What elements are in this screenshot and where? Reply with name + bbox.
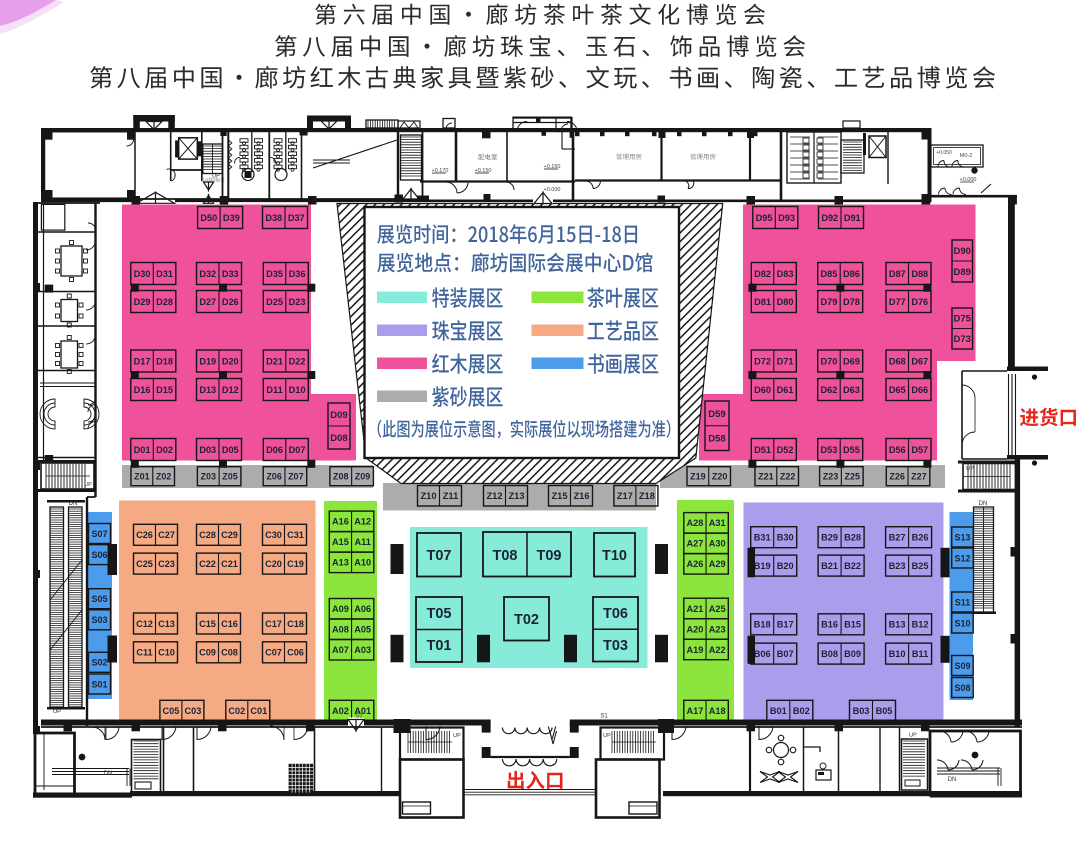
svg-text:D73: D73: [954, 334, 971, 345]
svg-text:T01: T01: [427, 638, 452, 654]
svg-text:C03: C03: [184, 706, 201, 716]
svg-text:DN: DN: [979, 501, 988, 507]
svg-text:A22: A22: [709, 645, 726, 655]
svg-text:D17: D17: [134, 356, 151, 366]
svg-text:B25: B25: [912, 561, 929, 571]
svg-text:D51: D51: [754, 445, 771, 455]
svg-text:B15: B15: [844, 620, 861, 630]
svg-text:A18: A18: [709, 706, 726, 716]
svg-text:D20: D20: [222, 356, 239, 366]
svg-text:D11: D11: [266, 385, 282, 395]
svg-text:+0.050: +0.050: [936, 150, 952, 156]
svg-text:D01: D01: [134, 445, 151, 455]
svg-text:S12: S12: [954, 553, 970, 563]
svg-text:A05: A05: [354, 625, 371, 635]
svg-text:D91: D91: [844, 213, 861, 223]
svg-text:D23: D23: [289, 297, 306, 307]
svg-text:D70: D70: [821, 356, 838, 366]
svg-text:D71: D71: [777, 356, 794, 366]
svg-text:D19: D19: [199, 356, 216, 366]
svg-text:UP: UP: [909, 733, 917, 739]
svg-text:B17: B17: [777, 620, 794, 630]
svg-text:DN: DN: [948, 777, 957, 783]
svg-text:B18: B18: [754, 620, 771, 630]
svg-text:B21: B21: [821, 561, 838, 571]
svg-text:Z03: Z03: [201, 471, 217, 481]
svg-text:Z12: Z12: [486, 491, 502, 501]
svg-text:S09: S09: [954, 661, 970, 671]
svg-text:D13: D13: [199, 385, 216, 395]
svg-text:D69: D69: [843, 356, 860, 366]
svg-text:D50: D50: [200, 213, 217, 223]
svg-text:Z21: Z21: [758, 471, 774, 481]
svg-text:Z18: Z18: [639, 491, 655, 501]
svg-text:D82: D82: [754, 269, 771, 279]
svg-text:C01: C01: [250, 706, 267, 716]
svg-text:D55: D55: [843, 445, 860, 455]
svg-text:D37: D37: [288, 213, 305, 223]
svg-text:C11: C11: [136, 648, 152, 658]
svg-text:D12: D12: [222, 385, 239, 395]
svg-text:D80: D80: [777, 297, 794, 307]
svg-text:A09: A09: [332, 604, 349, 614]
svg-text:S10: S10: [954, 618, 970, 628]
svg-text:C23: C23: [158, 559, 175, 569]
svg-text:C20: C20: [265, 559, 282, 569]
svg-text:Z15: Z15: [551, 491, 567, 501]
svg-text:D25: D25: [266, 297, 283, 307]
svg-text:Z05: Z05: [222, 471, 238, 481]
svg-text:B28: B28: [844, 533, 861, 543]
svg-text:C02: C02: [228, 706, 245, 716]
svg-text:C15: C15: [199, 619, 216, 629]
svg-text:D06: D06: [266, 445, 283, 455]
svg-text:D83: D83: [777, 269, 794, 279]
svg-text:D79: D79: [821, 297, 838, 307]
svg-text:S13: S13: [954, 532, 970, 542]
svg-text:B05: B05: [876, 706, 893, 716]
svg-text:D78: D78: [843, 297, 860, 307]
svg-text:B09: B09: [844, 649, 861, 659]
svg-text:D26: D26: [222, 297, 239, 307]
svg-text:B16: B16: [821, 620, 838, 630]
svg-text:B10: B10: [889, 649, 906, 659]
svg-text:D30: D30: [134, 269, 151, 279]
svg-text:D85: D85: [821, 269, 838, 279]
svg-text:D86: D86: [843, 269, 860, 279]
svg-text:S1: S1: [355, 714, 363, 720]
svg-text:A10: A10: [354, 558, 371, 568]
svg-text:D36: D36: [289, 269, 306, 279]
svg-text:D58: D58: [708, 434, 725, 445]
svg-text:B03: B03: [853, 706, 870, 716]
svg-text:D02: D02: [156, 445, 173, 455]
svg-text:Z27: Z27: [911, 471, 927, 481]
svg-text:B30: B30: [777, 533, 794, 543]
svg-text:D31: D31: [156, 269, 173, 279]
svg-text:S01: S01: [91, 679, 107, 689]
svg-text:D16: D16: [134, 385, 151, 395]
svg-text:C13: C13: [158, 619, 175, 629]
svg-text:C31: C31: [287, 530, 304, 540]
svg-text:T02: T02: [514, 612, 539, 628]
svg-text:D76: D76: [911, 297, 928, 307]
svg-text:D15: D15: [156, 385, 173, 395]
svg-text:D72: D72: [754, 356, 771, 366]
svg-text:C19: C19: [287, 559, 304, 569]
svg-text:A07: A07: [332, 645, 349, 655]
svg-text:S02: S02: [91, 658, 107, 668]
svg-text:D92: D92: [821, 213, 838, 223]
svg-text:A20: A20: [686, 624, 703, 634]
svg-text:C07: C07: [265, 648, 282, 658]
svg-text:UP: UP: [53, 709, 61, 715]
svg-text:Z11: Z11: [443, 491, 459, 501]
svg-text:B08: B08: [821, 649, 838, 659]
svg-text:C28: C28: [199, 530, 216, 540]
svg-text:D18: D18: [156, 356, 173, 366]
svg-text:C06: C06: [287, 648, 304, 658]
svg-text:A21: A21: [686, 604, 703, 614]
svg-text:A11: A11: [354, 537, 370, 547]
svg-text:A06: A06: [354, 604, 371, 614]
svg-text:UP: UP: [603, 733, 611, 739]
svg-text:Z10: Z10: [420, 491, 436, 501]
svg-text:D63: D63: [843, 385, 860, 395]
svg-text:+0.000: +0.000: [544, 187, 561, 193]
svg-text:D77: D77: [889, 297, 906, 307]
svg-text:D39: D39: [223, 213, 240, 223]
svg-text:B20: B20: [777, 561, 794, 571]
svg-text:T10: T10: [602, 548, 627, 564]
svg-text:D88: D88: [911, 269, 928, 279]
svg-text:Z20: Z20: [712, 471, 728, 481]
svg-text:C17: C17: [265, 619, 282, 629]
svg-text:Z13: Z13: [508, 491, 524, 501]
svg-text:T05: T05: [427, 606, 452, 622]
svg-text:B23: B23: [889, 561, 906, 571]
svg-text:D93: D93: [778, 213, 795, 223]
svg-text:Z08: Z08: [333, 471, 349, 481]
svg-text:B31: B31: [754, 533, 771, 543]
svg-text:C26: C26: [136, 530, 153, 540]
svg-text:A08: A08: [332, 625, 349, 635]
svg-text:C16: C16: [221, 619, 238, 629]
svg-text:A27: A27: [686, 539, 703, 549]
svg-text:D59: D59: [708, 409, 725, 420]
svg-text:C30: C30: [265, 530, 282, 540]
svg-text:D35: D35: [266, 269, 283, 279]
svg-text:D60: D60: [754, 385, 771, 395]
svg-text:D07: D07: [289, 445, 306, 455]
svg-text:T07: T07: [427, 548, 452, 564]
svg-text:UP: UP: [453, 733, 461, 739]
svg-text:C08: C08: [221, 648, 238, 658]
svg-text:Z22: Z22: [780, 471, 796, 481]
svg-text:D87: D87: [889, 269, 906, 279]
svg-text:Z06: Z06: [266, 471, 282, 481]
svg-text:D29: D29: [134, 297, 151, 307]
svg-text:A17: A17: [686, 706, 703, 716]
svg-text:A16: A16: [332, 517, 349, 527]
svg-text:Z23: Z23: [823, 471, 839, 481]
svg-text:A12: A12: [354, 517, 371, 527]
svg-text:Z16: Z16: [573, 491, 589, 501]
svg-text:B13: B13: [889, 620, 906, 630]
svg-text:D68: D68: [889, 356, 906, 366]
svg-text:B26: B26: [912, 533, 929, 543]
svg-text:Z26: Z26: [889, 471, 905, 481]
svg-text:C27: C27: [158, 530, 175, 540]
svg-text:D67: D67: [911, 356, 928, 366]
svg-text:D90: D90: [954, 246, 971, 257]
svg-text:B02: B02: [793, 706, 810, 716]
svg-text:D03: D03: [199, 445, 216, 455]
svg-text:S08: S08: [954, 683, 970, 693]
svg-text:T09: T09: [537, 548, 562, 564]
svg-text:C22: C22: [199, 559, 216, 569]
svg-text:C09: C09: [199, 648, 216, 658]
svg-text:B07: B07: [777, 649, 794, 659]
svg-text:D56: D56: [889, 445, 906, 455]
svg-text:D10: D10: [289, 385, 306, 395]
svg-text:C21: C21: [221, 559, 238, 569]
svg-text:Z19: Z19: [690, 471, 706, 481]
svg-text:DN: DN: [104, 771, 113, 777]
svg-text:Z02: Z02: [156, 471, 172, 481]
svg-text:D22: D22: [289, 356, 306, 366]
svg-text:C29: C29: [221, 530, 238, 540]
svg-text:S05: S05: [91, 594, 107, 604]
svg-text:D27: D27: [199, 297, 216, 307]
svg-text:D61: D61: [777, 385, 794, 395]
svg-text:T08: T08: [493, 548, 518, 564]
svg-text:Z07: Z07: [288, 471, 304, 481]
svg-text:D95: D95: [756, 213, 773, 223]
svg-text:B06: B06: [754, 649, 771, 659]
svg-text:Z25: Z25: [844, 471, 860, 481]
svg-text:D21: D21: [266, 356, 283, 366]
svg-text:A02: A02: [332, 706, 349, 716]
svg-text:C18: C18: [287, 619, 304, 629]
svg-text:UP: UP: [84, 482, 92, 488]
svg-text:D57: D57: [911, 445, 928, 455]
svg-text:B29: B29: [821, 533, 838, 543]
svg-text:B22: B22: [844, 561, 861, 571]
svg-text:D65: D65: [889, 385, 906, 395]
svg-text:B19: B19: [754, 561, 771, 571]
svg-text:C10: C10: [158, 648, 175, 658]
svg-text:D32: D32: [199, 269, 216, 279]
svg-text:D62: D62: [821, 385, 838, 395]
svg-text:A13: A13: [332, 558, 349, 568]
svg-text:S11: S11: [955, 597, 971, 607]
svg-text:A31: A31: [709, 518, 726, 528]
svg-text:A28: A28: [686, 518, 703, 528]
svg-text:C25: C25: [136, 559, 153, 569]
svg-text:A26: A26: [686, 559, 703, 569]
svg-text:D89: D89: [954, 267, 971, 278]
svg-text:A19: A19: [686, 645, 703, 655]
svg-text:S1: S1: [600, 714, 608, 720]
svg-text:D81: D81: [754, 297, 771, 307]
svg-text:T06: T06: [603, 606, 628, 622]
svg-text:B12: B12: [912, 620, 929, 630]
svg-text:D66: D66: [911, 385, 928, 395]
svg-text:S06: S06: [91, 550, 107, 560]
svg-text:Z09: Z09: [355, 471, 371, 481]
svg-text:D75: D75: [954, 314, 972, 325]
svg-text:A29: A29: [709, 559, 726, 569]
svg-text:M0-2: M0-2: [960, 153, 973, 159]
svg-text:Z01: Z01: [134, 471, 150, 481]
svg-text:T03: T03: [603, 638, 628, 654]
svg-text:S03: S03: [91, 615, 107, 625]
svg-text:D52: D52: [777, 445, 794, 455]
svg-text:Z17: Z17: [617, 491, 633, 501]
svg-text:D53: D53: [821, 445, 838, 455]
svg-text:D09: D09: [330, 410, 347, 421]
svg-text:C05: C05: [162, 706, 179, 716]
svg-text:B11: B11: [912, 649, 928, 659]
svg-text:D05: D05: [222, 445, 239, 455]
svg-text:A25: A25: [709, 604, 726, 614]
svg-text:A03: A03: [354, 645, 371, 655]
svg-text:D33: D33: [222, 269, 239, 279]
svg-text:UP: UP: [966, 466, 974, 472]
svg-text:A30: A30: [709, 539, 726, 549]
svg-text:D28: D28: [156, 297, 173, 307]
svg-text:C12: C12: [136, 619, 153, 629]
svg-text:D38: D38: [265, 213, 282, 223]
svg-text:B27: B27: [889, 533, 906, 543]
svg-text:B01: B01: [770, 706, 787, 716]
svg-text:A23: A23: [709, 624, 726, 634]
svg-text:A15: A15: [332, 537, 349, 547]
svg-text:S07: S07: [91, 529, 107, 539]
svg-text:D08: D08: [330, 433, 347, 444]
